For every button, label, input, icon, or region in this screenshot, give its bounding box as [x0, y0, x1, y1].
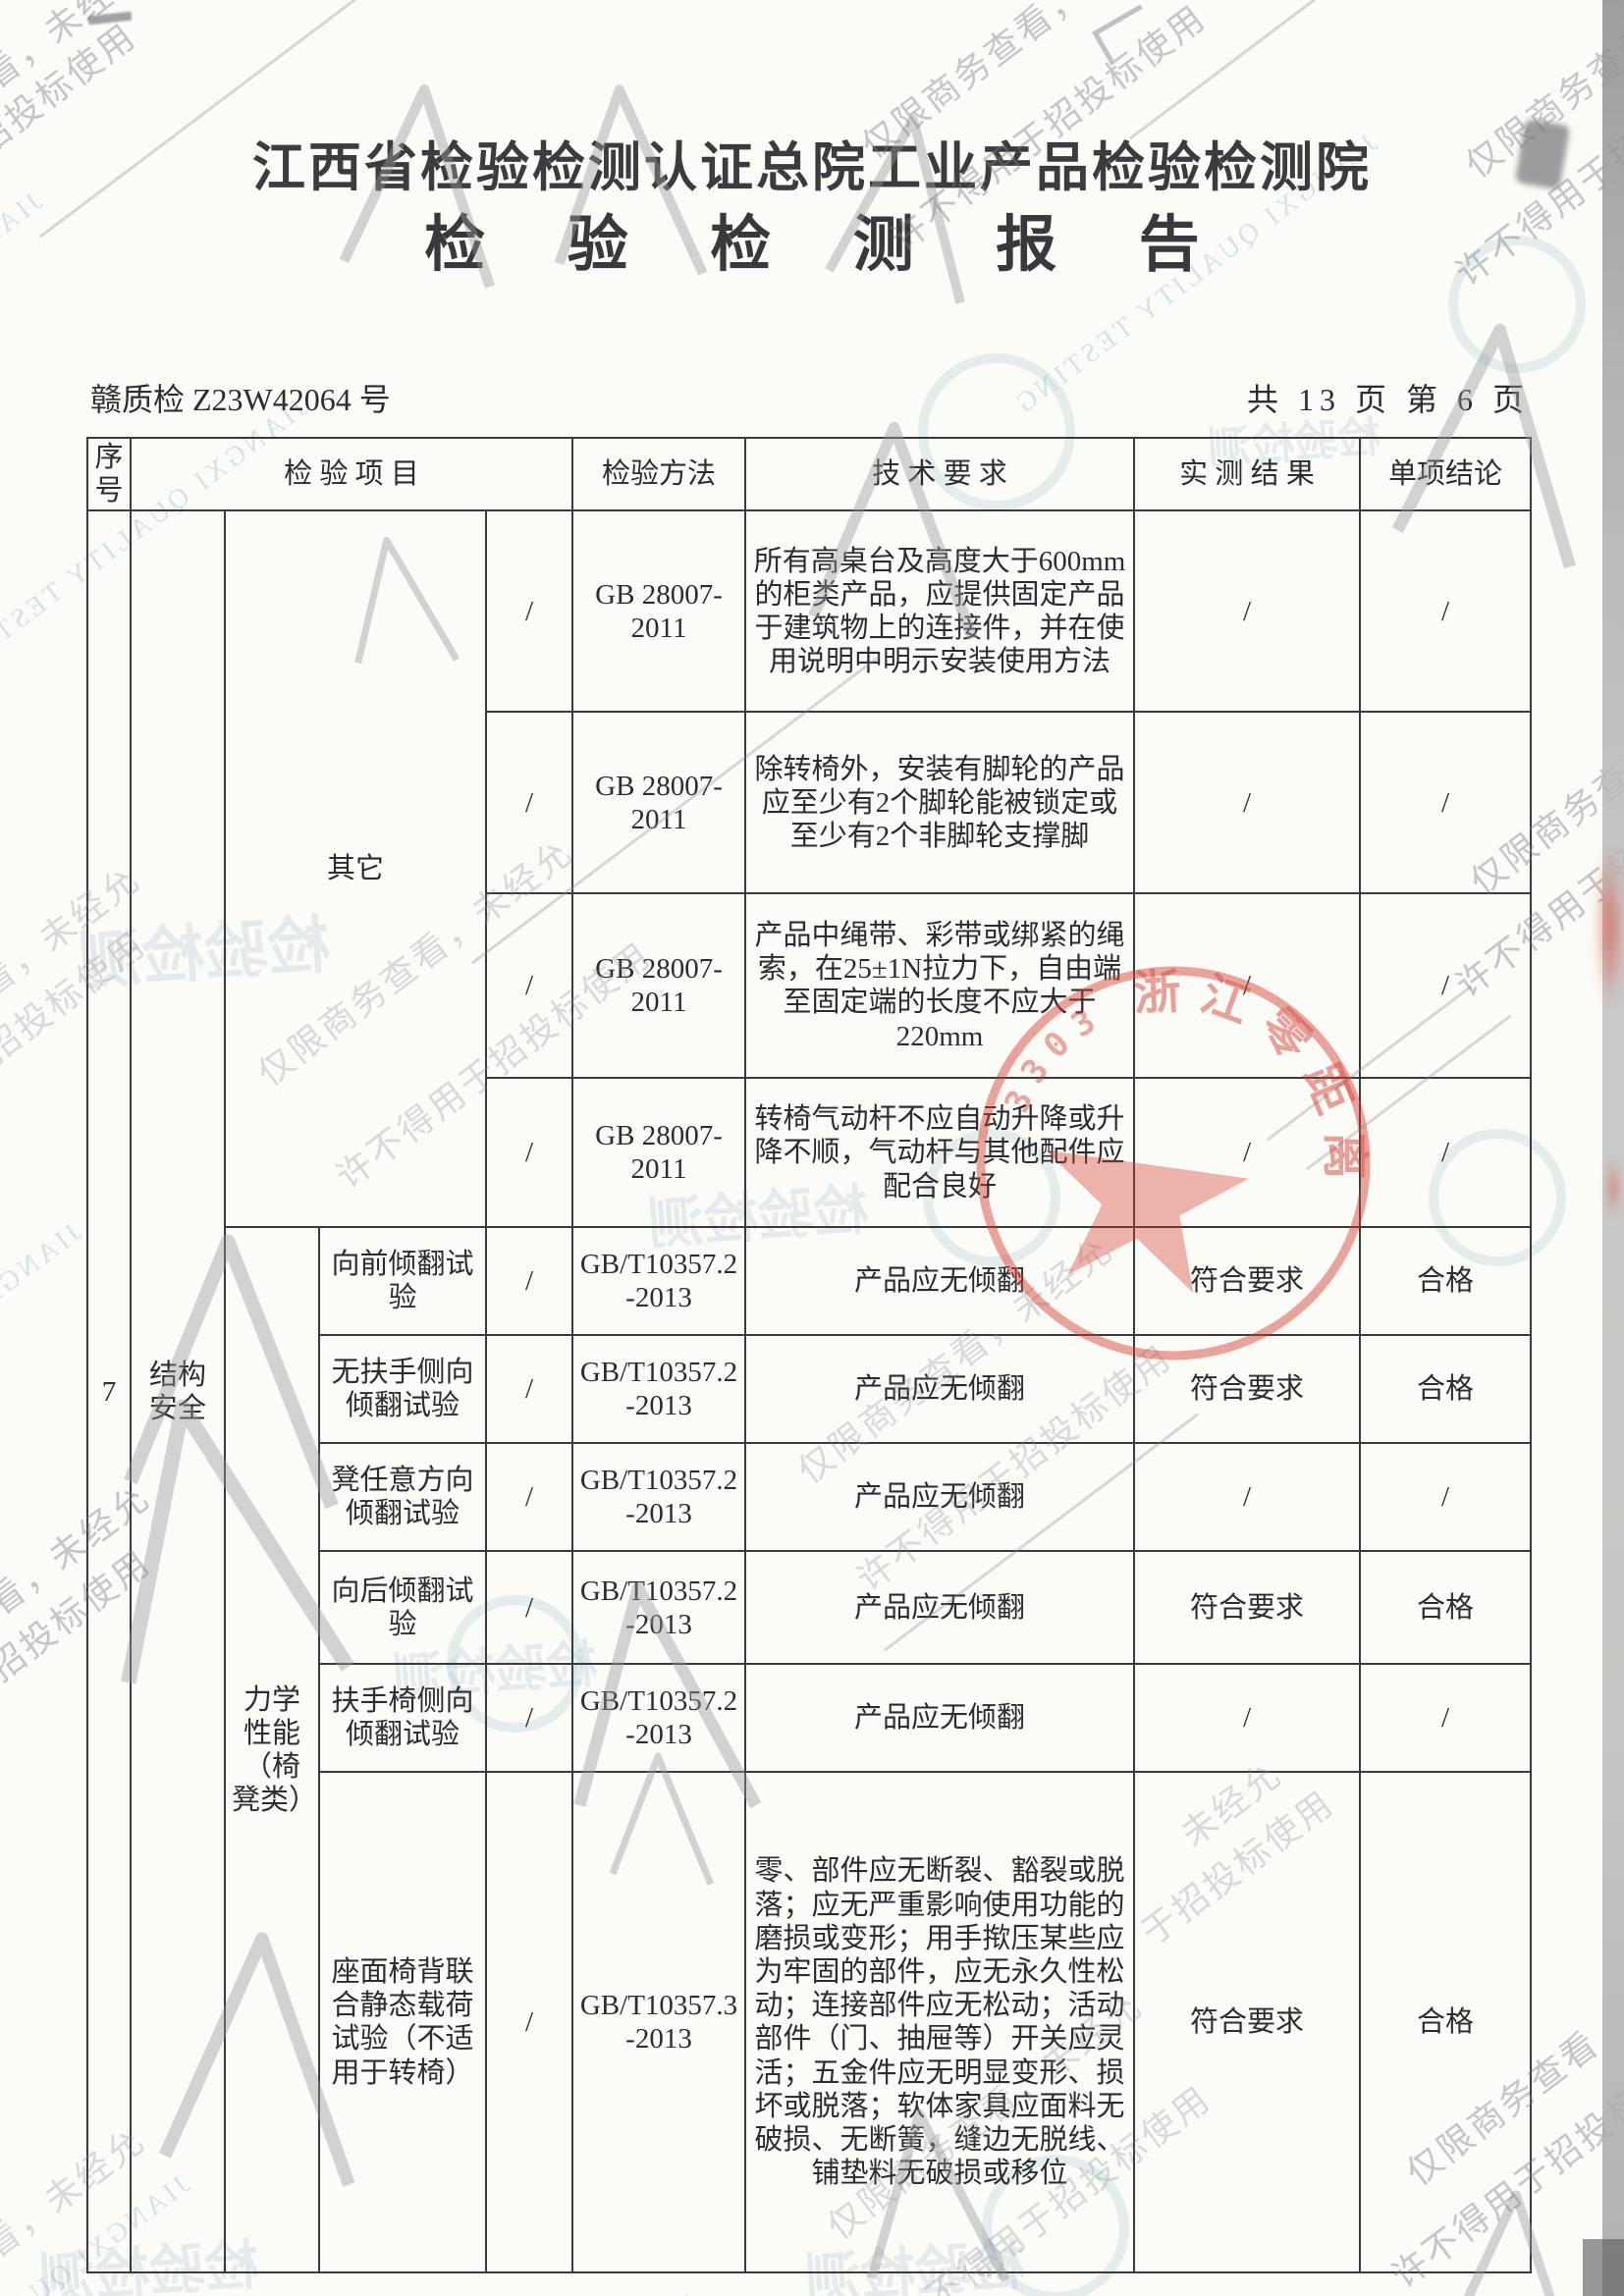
cell-result: / [1134, 712, 1360, 893]
cell-slash: / [486, 1227, 572, 1335]
seal-arc-text: 浙江零距离 [1132, 966, 1370, 1196]
red-ink-smudge [1604, 1158, 1622, 1217]
cell-conclusion: 合格 [1360, 1551, 1531, 1664]
scan-mark [88, 12, 133, 26]
cell-method: GB/T10357.2-2013 [572, 1443, 745, 1551]
cell-requirement: 除转椅外，安装有脚轮的产品应至少有2个脚轮能被锁定或至少有2个非脚轮支撑脚 [745, 712, 1134, 893]
scan-line-artifact [1129, 0, 1429, 139]
scan-corner-shadow [1583, 2239, 1624, 2296]
cell-method: GB 28007-2011 [572, 510, 745, 712]
report-meta-row: 赣质检 Z23W42064 号 共 13 页 第 6 页 [90, 375, 1530, 420]
cell-requirement: 产品应无倾翻 [745, 1443, 1134, 1551]
check-mark-watermark [825, 2096, 1041, 2293]
cell-method: GB/T10357.2-2013 [572, 1335, 745, 1443]
cell-slash: / [486, 1443, 572, 1551]
cell-requirement: 产品应无倾翻 [745, 1664, 1134, 1772]
check-mark-watermark [797, 406, 1000, 645]
check-mark-watermark [1428, 2166, 1605, 2296]
cell-conclusion: / [1360, 1664, 1531, 1772]
header-result: 实 测 结 果 [1134, 438, 1360, 510]
scan-edge-shadow [1602, 0, 1624, 2296]
cell-slash: / [486, 712, 572, 893]
svg-text:浙江零距离: 浙江零距离 [1132, 966, 1370, 1196]
scan-mark [1092, 4, 1160, 65]
check-mark-watermark [587, 1744, 739, 1887]
check-mark-watermark [812, 81, 1004, 321]
check-mark-watermark [302, 66, 549, 294]
cell-result: / [1134, 510, 1360, 712]
header-method: 检验方法 [572, 438, 745, 510]
check-mark-watermark [67, 1359, 364, 1715]
cell-result: 符合要求 [1134, 1551, 1360, 1664]
cell-result: 符合要求 [1134, 1772, 1360, 2272]
cell-slash: / [486, 1078, 572, 1227]
seal-star-icon [1029, 1076, 1260, 1298]
cell-result: / [1134, 1664, 1360, 1772]
ghost-latin-text: JIANGXI QUALITY TESTING [330, 2287, 706, 2296]
check-mark-watermark [1379, 301, 1617, 573]
cell-slash: / [486, 1335, 572, 1443]
cell-slash: / [486, 1772, 572, 2272]
check-mark-watermark [546, 54, 713, 299]
cell-method: GB 28007-2011 [572, 1078, 745, 1227]
organization-title: 江西省检验检测认证总院工业产品检验检测院 [0, 124, 1624, 201]
cell-method: GB/T10357.2-2013 [572, 1227, 745, 1335]
header-serial: 序号 [87, 438, 131, 510]
ghost-latin-text: JIANGXI QUALITY TESTING [0, 1217, 87, 1512]
cell-conclusion: / [1360, 1443, 1531, 1551]
report-title: 检 验 检 测 报 告 [0, 194, 1624, 283]
cell-conclusion: / [1360, 712, 1531, 893]
report-number: 赣质检 Z23W42064 号 [90, 375, 391, 420]
header-item: 检 验 项 目 [131, 438, 572, 510]
red-ink-smudge [1595, 844, 1624, 1011]
scanned-report-page: JIANGXI QUALITY TESTING JIANGXI QUALITY … [0, 0, 1624, 2296]
cell-result: / [1134, 1443, 1360, 1551]
cell-method: GB 28007-2011 [572, 893, 745, 1078]
check-mark-watermark [145, 1905, 385, 2198]
check-mark-watermark [280, 518, 518, 678]
red-official-seal: 浙江零距离 3303 [957, 947, 1389, 1379]
